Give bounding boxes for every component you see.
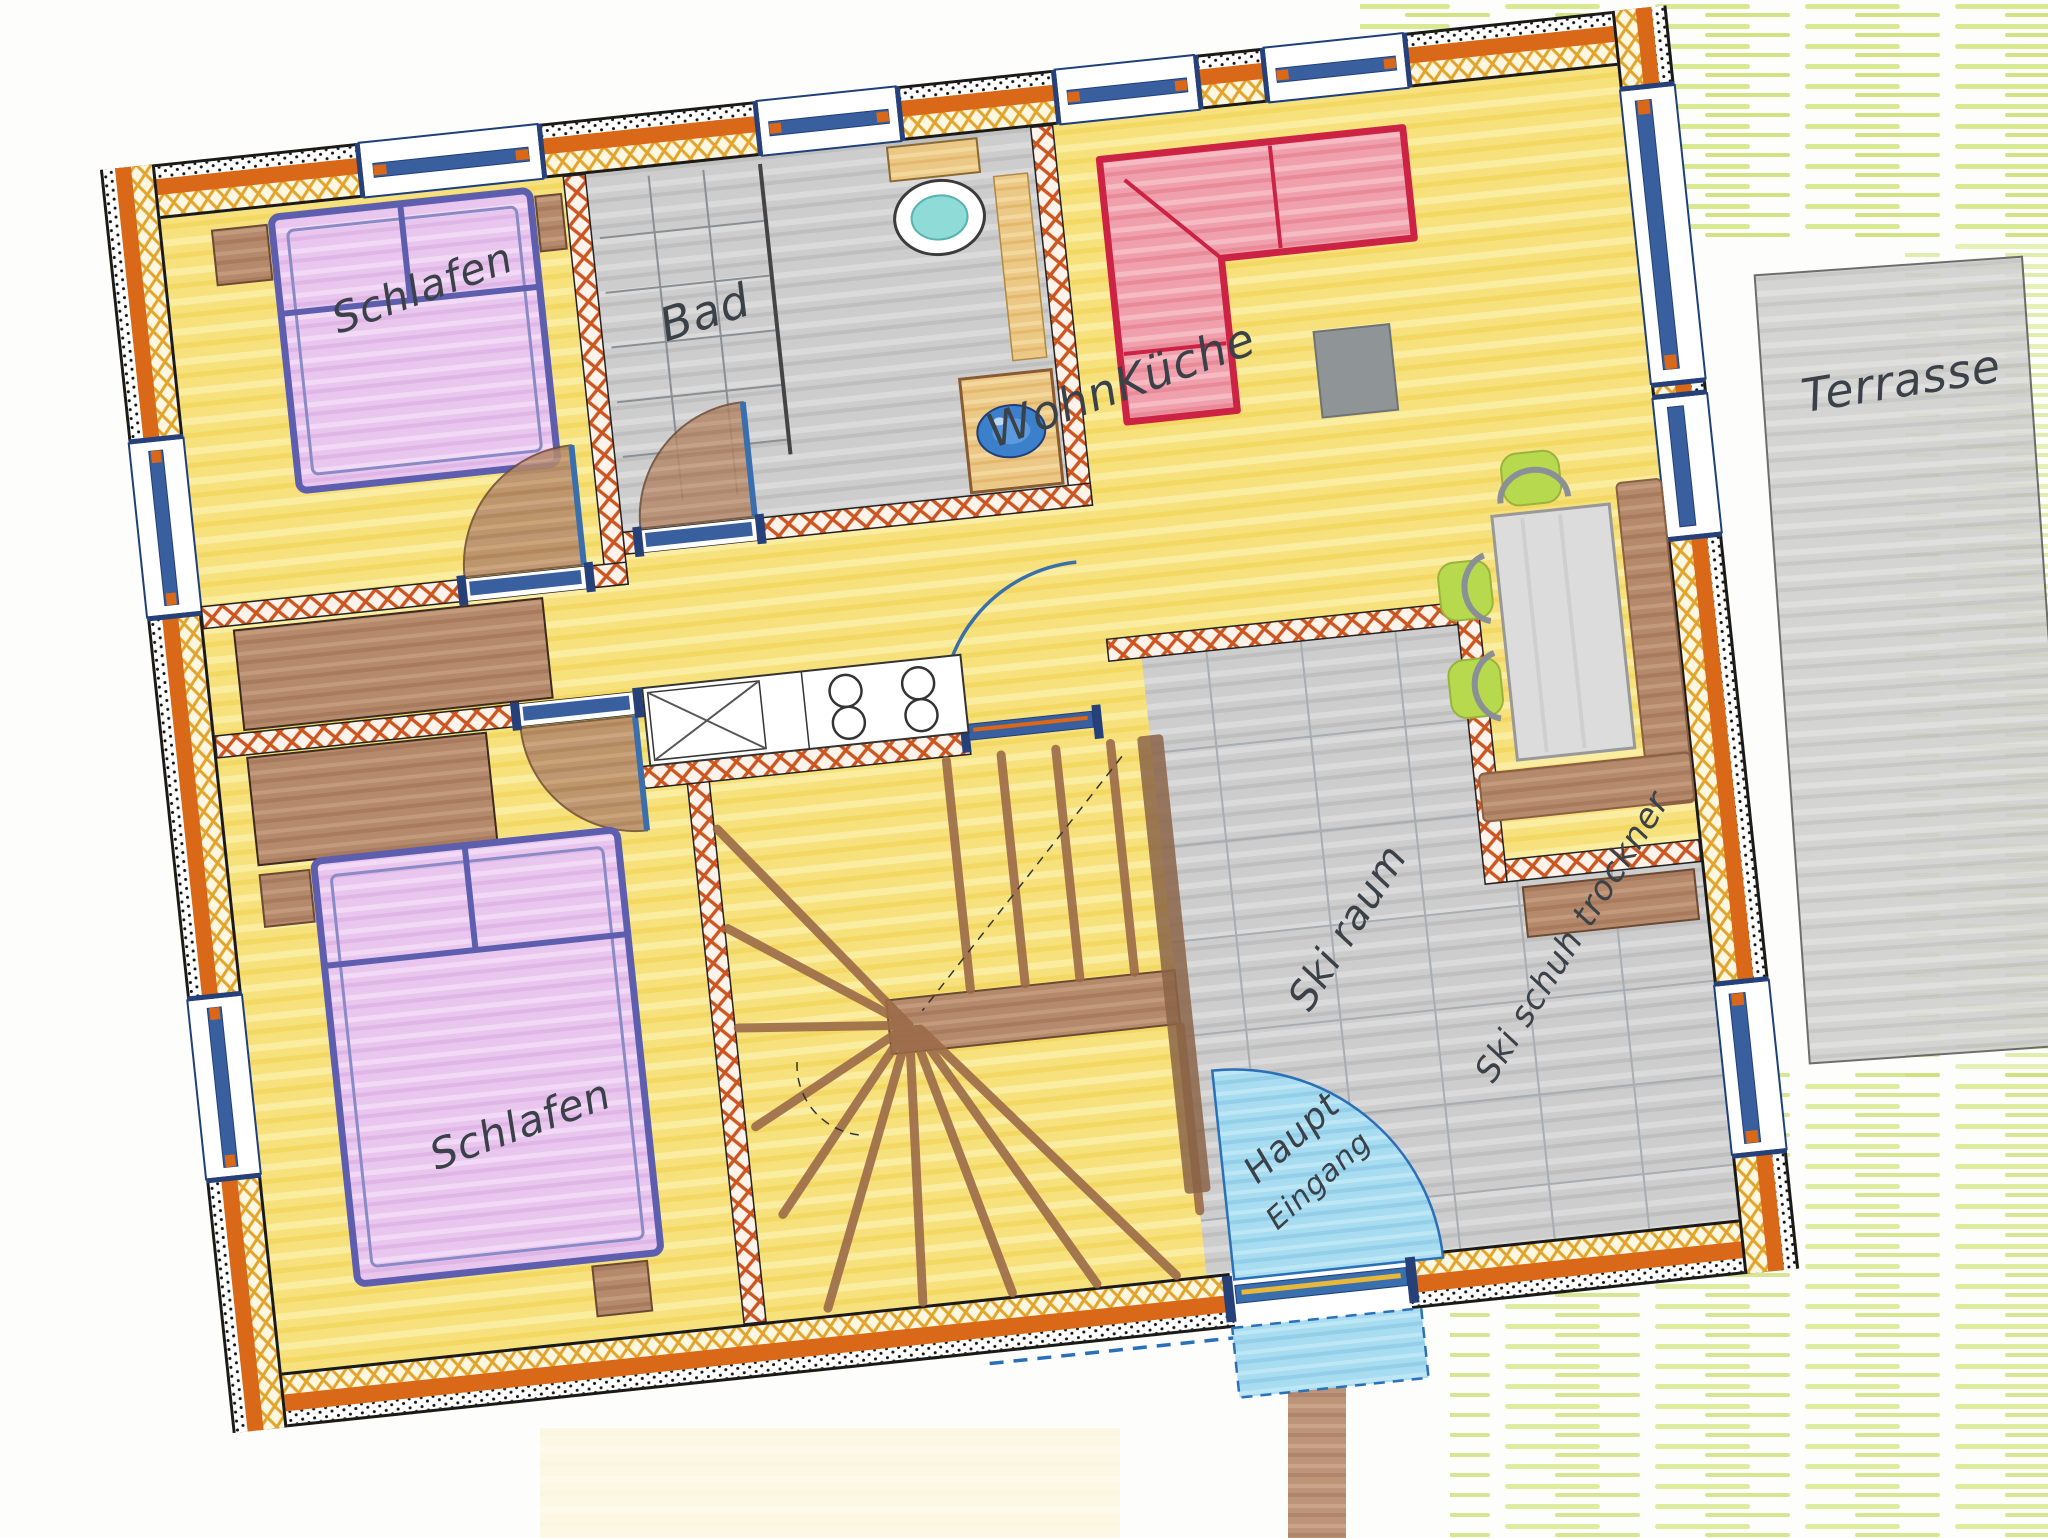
terrace: Terrasse bbox=[1755, 257, 2048, 1064]
toilet bbox=[887, 138, 988, 259]
nightstand-right bbox=[535, 194, 567, 251]
nightstand-left bbox=[212, 225, 272, 285]
side-table bbox=[1314, 324, 1399, 417]
dresser-bedroom2 bbox=[592, 1261, 652, 1316]
chair-left-2 bbox=[1446, 653, 1505, 724]
chair-left-1 bbox=[1436, 555, 1495, 626]
floor-plan-page: Terrasse RE 83 bbox=[0, 0, 2048, 1538]
nightstand-bedroom2 bbox=[260, 870, 315, 927]
house: Schlafen Bad bbox=[100, 5, 1806, 1502]
ground-tint-bottom bbox=[540, 1428, 1120, 1538]
bed-double-2 bbox=[313, 830, 661, 1285]
floor-plan-drawing: Terrasse RE 83 bbox=[0, 0, 2048, 1538]
bed-double-1 bbox=[271, 190, 558, 491]
